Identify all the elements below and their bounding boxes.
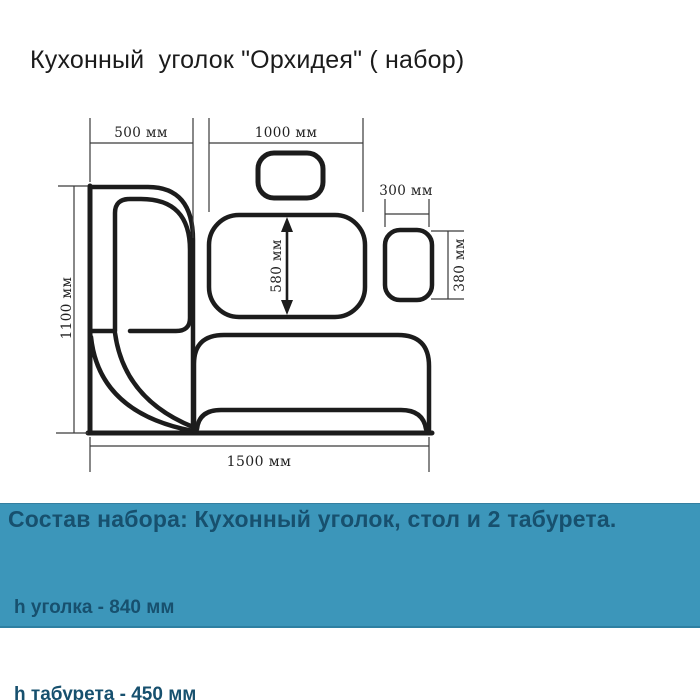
set-contents-heading: Состав набора: Кухонный уголок, стол и 2… — [8, 506, 616, 533]
corner-bench — [88, 186, 432, 433]
spec-line-corner-height: h уголка - 840 мм — [14, 593, 196, 622]
page: Кухонный уголок "Орхидея" ( набор) — [0, 0, 700, 700]
furniture-diagram: 500 мм 1000 мм 300 мм 380 мм 580 мм 1100… — [0, 0, 700, 500]
dimension-bench-length: 1500 мм — [90, 437, 429, 472]
info-panel: Состав набора: Кухонный уголок, стол и 2… — [0, 503, 700, 628]
long-bench — [194, 335, 429, 431]
dimension-corner-side: 1100 мм — [56, 186, 88, 433]
corner-seat-outer-curve — [91, 337, 193, 431]
dim-label-table-width: 1000 мм — [255, 125, 318, 141]
dim-label-back-width: 500 мм — [114, 125, 168, 141]
dimension-stool-width: 300 мм — [379, 183, 433, 227]
corner-seat-inner-curve — [115, 333, 193, 427]
dimension-stool-depth: 380 мм — [431, 231, 468, 299]
dim-label-table-depth: 580 мм — [269, 239, 285, 293]
stool-top — [385, 230, 432, 300]
long-bench-outline — [194, 335, 429, 431]
dim-label-stool-depth: 380 мм — [452, 238, 468, 292]
spec-line-stool-height: h табурета - 450 мм — [14, 680, 196, 700]
bench-backrest-cushion — [90, 199, 190, 331]
dim-label-bench-length: 1500 мм — [227, 454, 292, 470]
bench-wall-edge — [88, 186, 432, 433]
long-bench-seat-edge — [197, 410, 426, 429]
headrest-cushion — [258, 153, 323, 198]
dim-label-stool-width: 300 мм — [379, 183, 433, 199]
dimension-back-width: 500 мм — [90, 118, 193, 238]
dim-label-corner-side: 1100 мм — [59, 277, 75, 340]
spec-list: h уголка - 840 мм h табурета - 450 мм h … — [14, 535, 196, 700]
